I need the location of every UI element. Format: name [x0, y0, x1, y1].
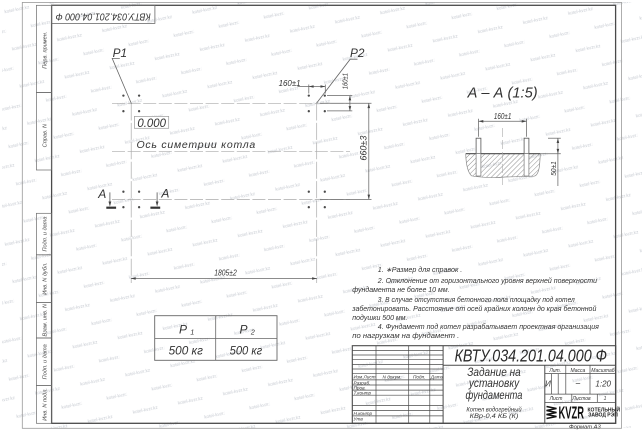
svg-text:Формат А3: Формат А3: [569, 425, 601, 430]
svg-text:подушки 500 мм.: подушки 500 мм.: [352, 314, 407, 322]
svg-text:Инв. N дубл.: Инв. N дубл.: [43, 262, 49, 294]
svg-text:Листов: Листов: [571, 396, 591, 402]
svg-text:Масса: Масса: [571, 368, 586, 374]
svg-text:ЗАВОД РЭП: ЗАВОД РЭП: [588, 413, 618, 419]
svg-text:Дата: Дата: [430, 375, 444, 380]
svg-text:Подп.: Подп.: [413, 375, 425, 380]
svg-text:Р2: Р2: [350, 46, 365, 60]
svg-text:Лист: Лист: [549, 396, 563, 402]
svg-text:N докум.: N докум.: [383, 375, 402, 380]
svg-text:А – А (1:5): А – А (1:5): [467, 86, 538, 102]
svg-text:Справ. N: Справ. N: [43, 123, 49, 147]
svg-text:1:20: 1:20: [595, 380, 611, 389]
svg-text:Лит.: Лит.: [548, 368, 561, 374]
svg-text:4. Фундамент под котел разраба: 4. Фундамент под котел разрабатывает про…: [378, 323, 599, 331]
svg-text:160±1: 160±1: [494, 112, 512, 121]
svg-text:Взам. инв. N: Взам. инв. N: [43, 303, 49, 337]
svg-text:KVZR: KVZR: [559, 402, 585, 422]
svg-text:забетонировать. Расстояние от: забетонировать. Расстояние от осей крайн…: [351, 305, 596, 313]
svg-text:Подп. и дата: Подп. и дата: [43, 344, 49, 379]
svg-text:Перв. примен.: Перв. примен.: [43, 32, 49, 69]
svg-text:500 кг: 500 кг: [230, 346, 263, 358]
svg-text:КВТУ.034.201.04.000 Ф: КВТУ.034.201.04.000 Ф: [56, 10, 151, 22]
svg-text:фундамента не более 10 мм.: фундамента не более 10 мм.: [352, 286, 449, 294]
svg-text:0.000: 0.000: [137, 116, 166, 130]
svg-text:Т.контр: Т.контр: [354, 391, 372, 396]
svg-text:И: И: [545, 380, 551, 389]
svg-text:160±1: 160±1: [279, 79, 301, 88]
svg-text:Инв. N подл.: Инв. N подл.: [43, 388, 49, 421]
svg-text:3. В случае отсутствия бетонно: 3. В случае отсутствия бетонного пола пл…: [378, 296, 575, 304]
svg-text:Подп. и дата: Подп. и дата: [43, 216, 49, 251]
svg-text:Ось симетрии котла: Ось симетрии котла: [137, 139, 257, 151]
svg-text:Изм.Лист: Изм.Лист: [354, 375, 376, 380]
svg-text:Утв: Утв: [354, 416, 364, 421]
svg-text:1: 1: [604, 396, 607, 402]
svg-text:500 кг: 500 кг: [169, 346, 204, 358]
svg-text:Масштаб: Масштаб: [591, 368, 615, 374]
svg-text:А: А: [160, 187, 169, 201]
svg-text:1. ∗Размер для справок .: 1. ∗Размер для справок .: [378, 266, 463, 274]
svg-text:50±1: 50±1: [549, 161, 558, 176]
svg-text:по нагрузкам на фундамент .: по нагрузкам на фундамент .: [352, 332, 459, 340]
svg-text:Р1: Р1: [113, 46, 127, 60]
svg-text:А: А: [97, 187, 106, 201]
svg-text:660±3: 660±3: [359, 135, 369, 160]
svg-text:160±1: 160±1: [340, 73, 349, 89]
svg-text:фундамента: фундамента: [466, 388, 523, 402]
svg-text:2. Отклонение от горизонтально: 2. Отклонение от горизонтального уровня …: [377, 277, 597, 285]
svg-text:1805±2: 1805±2: [214, 268, 237, 278]
svg-text:–: –: [575, 379, 581, 388]
svg-text:КВТУ.034.201.04.000 Ф: КВТУ.034.201.04.000 Ф: [455, 346, 608, 366]
svg-text:КВр-0,4 КБ (К): КВр-0,4 КБ (К): [470, 413, 519, 420]
